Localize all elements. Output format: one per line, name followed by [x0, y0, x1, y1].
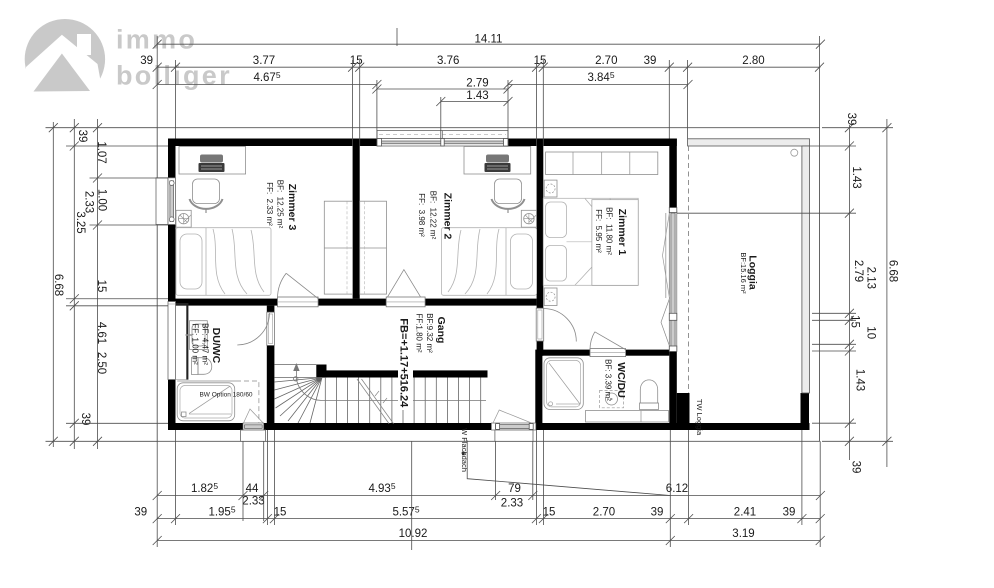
svg-text:39: 39	[850, 461, 862, 474]
svg-text:14.11: 14.11	[475, 34, 503, 46]
svg-text:bolliger: bolliger	[116, 61, 232, 91]
svg-text:4.61: 4.61	[95, 322, 107, 344]
svg-text:BF: 3.39 m²: BF: 3.39 m²	[604, 359, 613, 401]
svg-text:immo: immo	[116, 25, 197, 55]
svg-text:10: 10	[865, 326, 877, 339]
svg-text:1.43: 1.43	[466, 90, 488, 102]
svg-text:3.77: 3.77	[253, 55, 275, 67]
svg-text:2.13: 2.13	[865, 267, 877, 289]
svg-text:FF: 5.95 m²: FF: 5.95 m²	[594, 209, 603, 253]
svg-text:Zimmer 2: Zimmer 2	[442, 193, 454, 240]
svg-text:15: 15	[350, 55, 363, 67]
svg-text:6.68: 6.68	[887, 260, 899, 282]
svg-text:Zimmer 1: Zimmer 1	[616, 209, 628, 256]
svg-text:15: 15	[274, 507, 287, 519]
svg-text:1.00: 1.00	[96, 189, 108, 211]
svg-text:39: 39	[76, 130, 88, 143]
svg-text:BF:15.16 m²: BF:15.16 m²	[739, 252, 748, 294]
svg-text:2.33: 2.33	[501, 498, 523, 510]
svg-text:2.80: 2.80	[742, 55, 764, 67]
svg-text:1.07: 1.07	[95, 141, 107, 163]
svg-text:3.76: 3.76	[437, 55, 459, 67]
svg-text:2.33: 2.33	[242, 496, 264, 508]
svg-text:BF: 11.80 m²: BF: 11.80 m²	[605, 207, 614, 255]
svg-text:1.43: 1.43	[854, 369, 866, 391]
svg-text:FF: 1.00 m²: FF: 1.00 m²	[191, 323, 200, 365]
svg-text:79: 79	[508, 483, 521, 495]
svg-text:44: 44	[246, 483, 259, 495]
svg-text:Gang: Gang	[435, 317, 447, 344]
svg-text:2.41: 2.41	[734, 507, 756, 519]
svg-text:TW Loggia: TW Loggia	[695, 399, 704, 436]
svg-text:6.12: 6.12	[666, 483, 688, 495]
svg-text:BW Option 180/60: BW Option 180/60	[199, 392, 252, 399]
svg-text:BF:9.32 m²: BF:9.32 m²	[425, 313, 434, 353]
svg-text:Zimmer 3: Zimmer 3	[286, 184, 298, 231]
svg-text:2.79: 2.79	[466, 78, 488, 90]
svg-text:39: 39	[845, 113, 857, 126]
svg-text:BF: 12.25 m²: BF: 12.25 m²	[276, 180, 285, 229]
svg-text:39: 39	[644, 55, 657, 67]
svg-text:3.25: 3.25	[74, 211, 86, 233]
svg-text:2.79: 2.79	[852, 260, 864, 282]
svg-text:39: 39	[140, 55, 153, 67]
svg-text:FF:1.80 m²: FF:1.80 m²	[415, 313, 424, 352]
svg-text:DU/WC: DU/WC	[210, 328, 222, 364]
svg-text:2.50: 2.50	[95, 352, 107, 374]
svg-text:15: 15	[849, 315, 861, 328]
svg-text:15: 15	[543, 507, 556, 519]
svg-text:FB=+1.17+516.24: FB=+1.17+516.24	[398, 318, 410, 408]
svg-text:39: 39	[783, 507, 796, 519]
svg-text:15: 15	[95, 280, 107, 293]
svg-text:10.92: 10.92	[399, 528, 428, 540]
svg-text:FF: 2.33 m²: FF: 2.33 m²	[265, 182, 274, 226]
svg-text:3.19: 3.19	[732, 528, 754, 540]
svg-text:BF: 4.47 m²: BF: 4.47 m²	[201, 323, 210, 365]
svg-text:WC/DU: WC/DU	[615, 362, 627, 398]
svg-text:1.43: 1.43	[850, 166, 862, 188]
svg-text:FF: 3.98 m²: FF: 3.98 m²	[417, 193, 426, 237]
svg-text:2.70: 2.70	[595, 55, 617, 67]
svg-text:2.33: 2.33	[83, 191, 95, 213]
svg-text:BF: 12.22 m²: BF: 12.22 m²	[429, 191, 438, 240]
svg-text:39: 39	[134, 507, 147, 519]
svg-text:39: 39	[651, 507, 664, 519]
svg-text:2.70: 2.70	[593, 507, 615, 519]
svg-text:W Flachdach: W Flachdach	[460, 428, 469, 472]
svg-text:6.68: 6.68	[52, 274, 64, 296]
svg-text:15: 15	[534, 55, 547, 67]
